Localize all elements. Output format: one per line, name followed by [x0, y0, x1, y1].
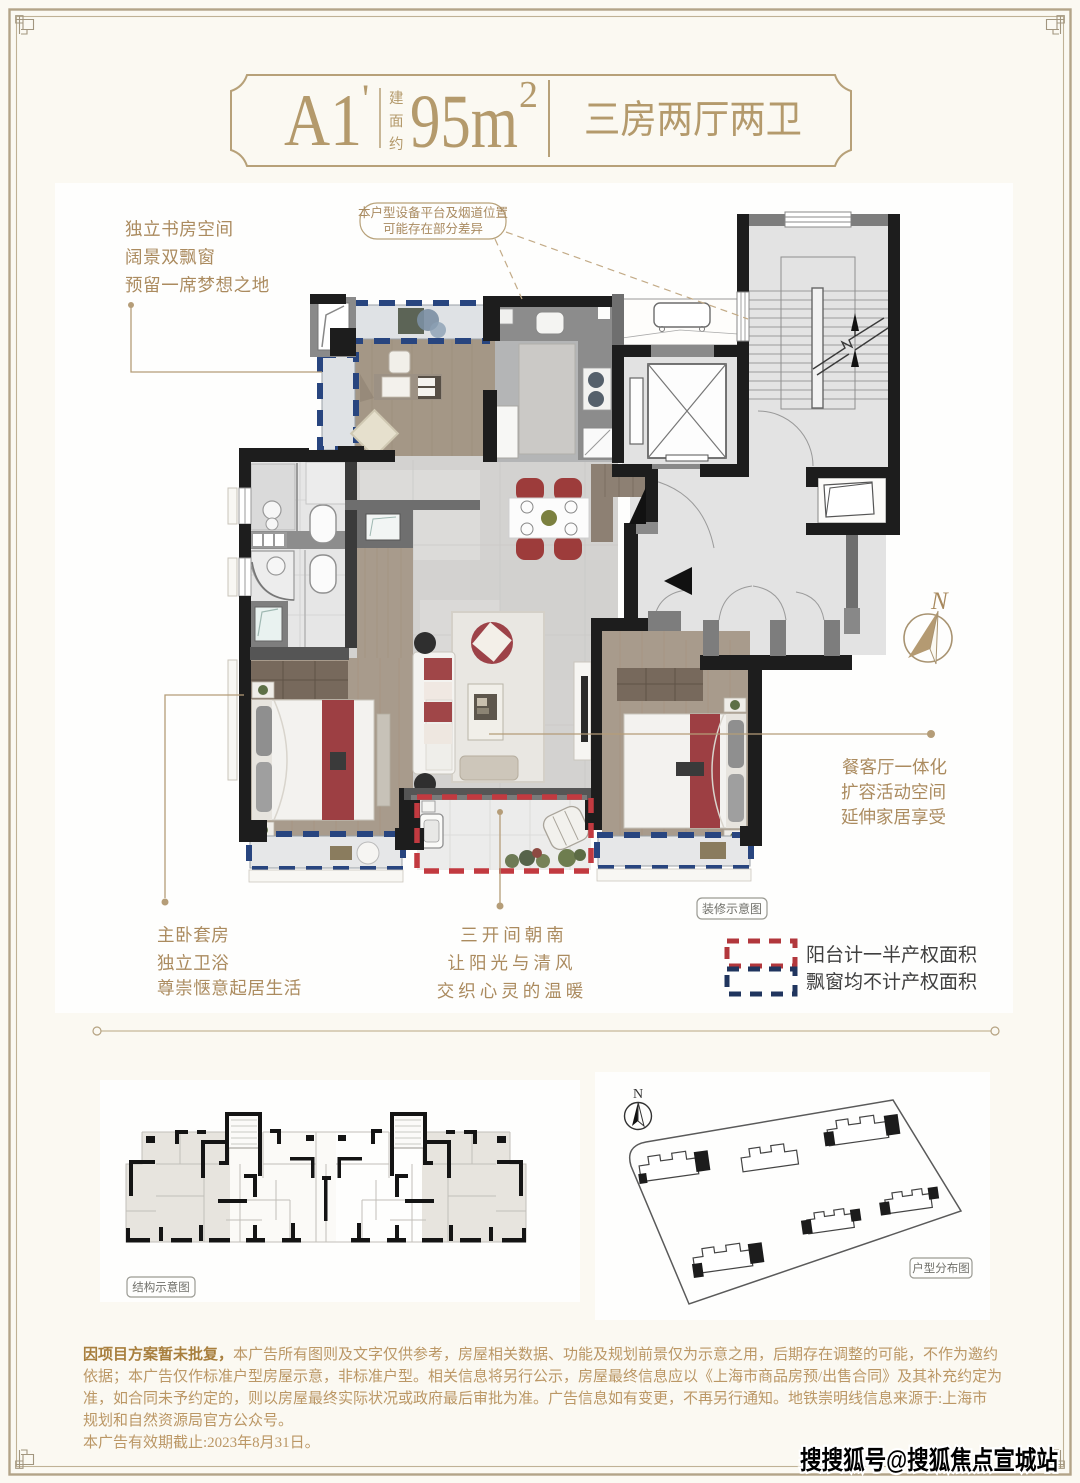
- svg-text:装修示意图: 装修示意图: [702, 901, 762, 916]
- svg-text:让阳光与清风: 让阳光与清风: [448, 953, 577, 973]
- svg-text:交织心灵的温暖: 交织心灵的温暖: [437, 981, 588, 1001]
- svg-text:N: N: [633, 1087, 643, 1102]
- svg-text:面: 面: [389, 114, 404, 130]
- svg-text:主卧套房: 主卧套房: [157, 925, 229, 945]
- svg-text:约: 约: [389, 136, 404, 153]
- svg-text:可能存在部分差异: 可能存在部分差异: [383, 221, 483, 236]
- svg-text:结构示意图: 结构示意图: [132, 1280, 190, 1294]
- svg-text:餐客厅一体化: 餐客厅一体化: [842, 757, 947, 777]
- svg-text:延伸家居享受: 延伸家居享受: [841, 807, 946, 827]
- svg-text:预留一席梦想之地: 预留一席梦想之地: [125, 275, 270, 295]
- svg-text:': ': [362, 76, 369, 121]
- svg-text:飘窗均不计产权面积: 飘窗均不计产权面积: [806, 971, 977, 993]
- svg-text:尊崇惬意起居生活: 尊崇惬意起居生活: [157, 978, 302, 998]
- svg-text:独立书房空间: 独立书房空间: [125, 219, 234, 239]
- svg-text:建: 建: [389, 90, 404, 107]
- svg-text:三房两厅两卫: 三房两厅两卫: [584, 99, 802, 142]
- svg-text:阔景双飘窗: 阔景双飘窗: [125, 247, 216, 267]
- svg-text:独立卫浴: 独立卫浴: [157, 953, 229, 973]
- svg-text:本户型设备平台及烟道位置: 本户型设备平台及烟道位置: [358, 205, 508, 220]
- svg-text:扩容活动空间: 扩容活动空间: [841, 782, 946, 802]
- svg-text:三开间朝南: 三开间朝南: [460, 925, 568, 945]
- svg-text:2: 2: [519, 74, 538, 116]
- svg-text:N: N: [930, 588, 949, 615]
- svg-text:95m: 95m: [410, 80, 518, 164]
- svg-text:阳台计一半产权面积: 阳台计一半产权面积: [806, 944, 977, 966]
- svg-text:户型分布图: 户型分布图: [912, 1261, 970, 1275]
- svg-text:A1: A1: [284, 80, 362, 162]
